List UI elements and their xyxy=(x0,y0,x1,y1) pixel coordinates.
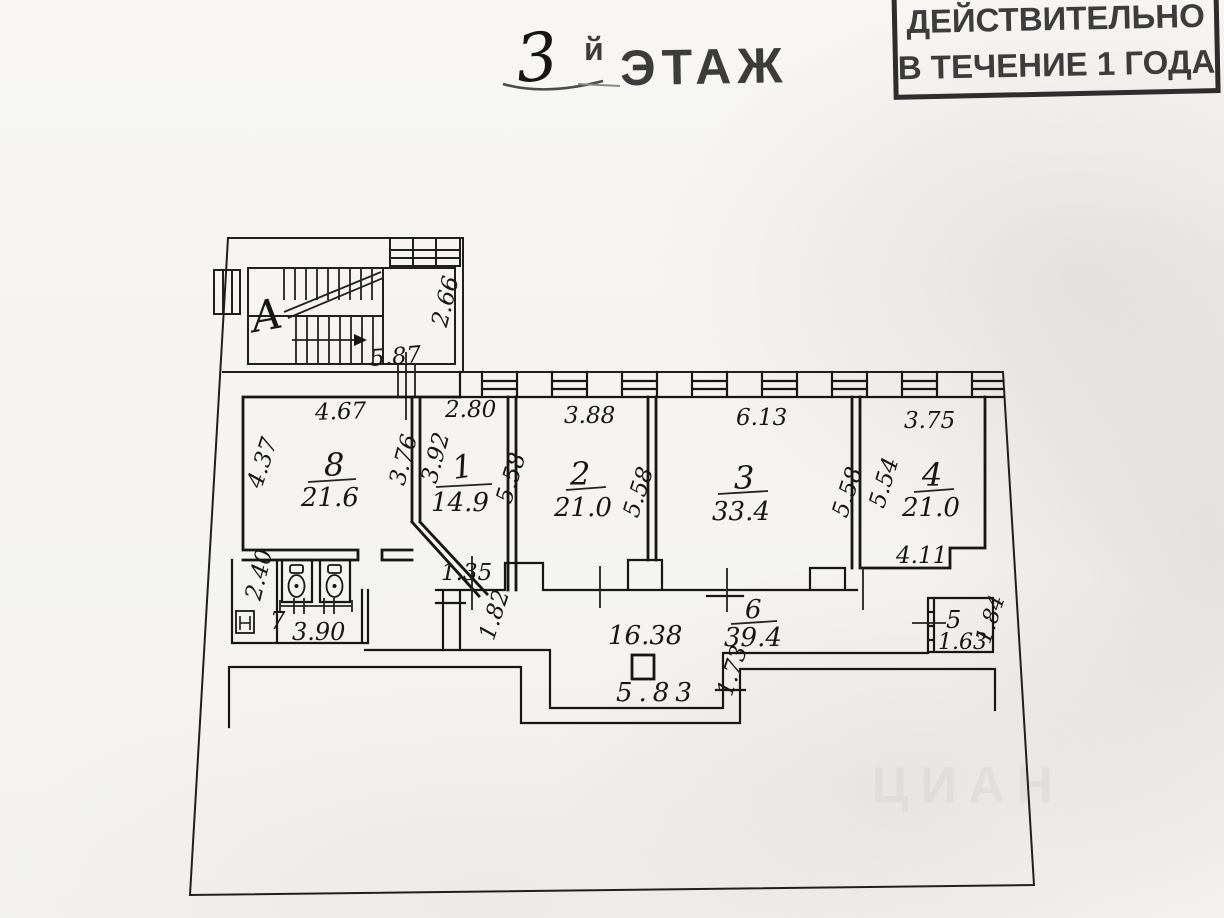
room-2-number: 2 xyxy=(569,455,590,493)
corridor-dim-left: 1.82 xyxy=(475,587,516,644)
room-4-dim-top: 3.75 xyxy=(904,408,955,434)
room-6-number: 6 xyxy=(745,595,762,625)
lower-step-wall xyxy=(229,650,995,727)
stair-dim-depth: 2.66 xyxy=(427,273,465,330)
room-8-number: 8 xyxy=(324,446,344,484)
watermark-text: ЦИАН xyxy=(872,757,1065,813)
room-1-dim-left: 3.92 xyxy=(417,430,455,486)
title-floor-word: ЭТАЖ xyxy=(620,37,789,96)
room-4-area: 21.0 xyxy=(901,493,960,523)
room-2-dim-top: 3.88 xyxy=(564,403,615,429)
validity-stamp: ДЕЙСТВИТЕЛЬНО В ТЕЧЕНИЕ 1 ГОДА xyxy=(894,0,1218,97)
room-4-dim-bottom: 4.11 xyxy=(895,543,947,569)
room-2-dim-right: 5.58 xyxy=(619,464,660,521)
room-7-number: 7 xyxy=(270,607,286,635)
stair-dim-width: 5.87 xyxy=(369,342,423,372)
room-1-dim-top: 2.80 xyxy=(444,397,496,423)
room-4-dim-left: 5.54 xyxy=(865,454,905,511)
scanned-floor-plan-page: ЦИАН 3 й ЭТАЖ ДЕЙСТВИТЕЛЬНО В ТЕЧЕНИЕ 1 … xyxy=(0,0,1224,918)
toilet-icon xyxy=(327,565,343,597)
corridor-area: 16.38 xyxy=(608,621,682,651)
stamp-line-1: ДЕЙСТВИТЕЛЬНО xyxy=(906,0,1205,40)
stamp-line-2: В ТЕЧЕНИЕ 1 ГОДА xyxy=(897,43,1215,87)
room-3-dim-top: 6.13 xyxy=(736,405,787,431)
room-1-number: 1 xyxy=(450,446,475,486)
stair-direction-arrow-icon xyxy=(354,334,367,346)
title-block: 3 й ЭТАЖ xyxy=(503,17,789,98)
room-4-number: 4 xyxy=(921,456,942,494)
room-7-dim-width: 3.90 xyxy=(292,618,345,646)
room-1-dim-right: 5.58 xyxy=(492,450,532,507)
room-7-dim-depth: 2.40 xyxy=(240,547,278,604)
room-8-dim-left: 4.37 xyxy=(242,434,283,492)
room-3-number: 3 xyxy=(734,459,754,497)
stair-label: А xyxy=(244,288,287,342)
title-floor-suffix: й xyxy=(584,31,604,67)
room-8-dim-top: 4.67 xyxy=(314,398,367,426)
column xyxy=(632,655,654,679)
room-3-area: 33.4 xyxy=(712,497,770,527)
room-2-area: 21.0 xyxy=(553,493,612,523)
toilet-icon xyxy=(289,565,305,597)
room-3-dim-right: 5.58 xyxy=(828,464,869,521)
corridor-walls xyxy=(436,560,993,652)
corridor-dim-door: 1.35 xyxy=(441,560,492,586)
corridor-dim-recess: 5.83 xyxy=(616,678,698,708)
room-1-area: 14.9 xyxy=(431,488,489,518)
title-floor-number: 3 xyxy=(512,17,562,98)
window-band xyxy=(460,372,1003,397)
corridor-dim-step: 1.73 xyxy=(713,643,754,700)
room-5-dim-right: 1.84 xyxy=(972,592,1011,646)
sink-icon xyxy=(236,611,254,633)
room-8-area: 21.6 xyxy=(300,483,359,513)
floor-plan-svg: ЦИАН 3 й ЭТАЖ ДЕЙСТВИТЕЛЬНО В ТЕЧЕНИЕ 1 … xyxy=(0,0,1224,918)
